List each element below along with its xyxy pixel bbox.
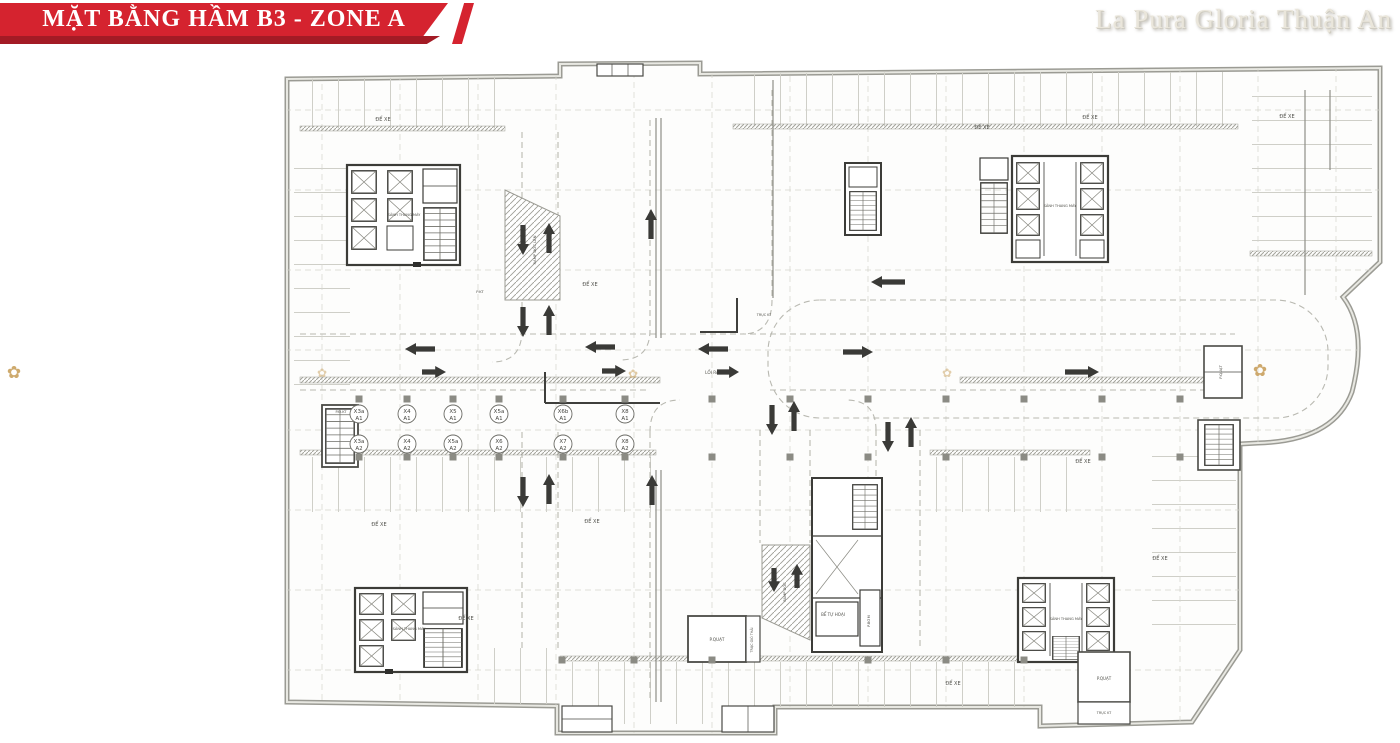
grid-bubble-top: X5a: [448, 439, 459, 445]
room-label: ĐỂ XE: [974, 123, 989, 131]
room-label: SẢNH THANG MÁY: [1050, 616, 1084, 621]
lotus-emblem-icon: ✿: [317, 366, 327, 380]
grid-bubble-bottom: A1: [449, 416, 456, 422]
floor-plan-drawing: ĐỂ XEĐỂ XEĐỂ XEĐỂ XEĐỂ XEĐỂ XEĐỂ XEĐỂ XE…: [0, 0, 1400, 743]
room-label: P.QUẠT: [1097, 676, 1112, 681]
lotus-emblem-icon: ✿: [7, 363, 21, 383]
room-label: ĐỂ XE: [1082, 113, 1097, 121]
grid-bubble-bottom: A2: [355, 446, 362, 452]
room-label: ĐỂ XE: [371, 520, 386, 528]
room-label: RAMP DỐC LÊN: [532, 235, 537, 264]
room-label: ĐỂ XE: [375, 115, 390, 123]
grid-bubble-top: X5: [449, 409, 457, 415]
grid-bubble-bottom: A2: [495, 446, 502, 452]
grid-bubble-top: X4: [403, 409, 411, 415]
grid-bubble-top: X3a: [354, 439, 365, 445]
room-label: ĐỂ XE: [945, 679, 960, 687]
room-label: SẢNH THANG MÁY: [388, 212, 422, 217]
room-label: TRỤC KT: [756, 313, 772, 317]
room-label: P.QUẠT: [710, 637, 725, 642]
grid-bubble-top: X6b: [558, 409, 569, 415]
grid-bubble-top: X5a: [494, 409, 505, 415]
room-label: SẢNH THANG MÁY: [1044, 203, 1078, 208]
room-bottom-protrusion-left: [562, 706, 612, 732]
grid-bubble-top: X3a: [354, 409, 365, 415]
grid-bubble-top: X6: [495, 439, 503, 445]
grid-bubble-bottom: A1: [559, 416, 566, 422]
room-label: RAMP DỐC: [782, 582, 787, 602]
room-label: ĐỂ XE: [458, 614, 473, 622]
floor-plan: ĐỂ XEĐỂ XEĐỂ XEĐỂ XEĐỂ XEĐỂ XEĐỂ XEĐỂ XE…: [0, 0, 1400, 743]
lotus-emblem-icon: ✿: [942, 366, 952, 380]
room-label: TRỤC KT: [1096, 711, 1112, 715]
lotus-emblem-icon: ✿: [1253, 361, 1267, 381]
banner-underline: [0, 36, 440, 44]
room-label: ĐỂ XE: [582, 280, 597, 288]
page-title: MẶT BẰNG HẦM B3 - ZONE A: [42, 6, 406, 33]
room-label: P.QUẠT: [1218, 365, 1223, 379]
room-top-step: [597, 64, 643, 76]
lotus-emblem-icon: ✿: [628, 367, 638, 381]
room-label: BỂ TỰ HOẠI: [821, 612, 845, 617]
brand-title: La Pura Gloria Thuận An: [1095, 4, 1392, 35]
grid-bubble-bottom: A1: [355, 416, 362, 422]
grid-bubble-bottom: A2: [559, 446, 566, 452]
grid-bubble-top: X4: [403, 439, 411, 445]
fan-room-right: [1204, 346, 1242, 398]
stair-right: [1198, 420, 1240, 470]
room-label: P.KT: [476, 289, 484, 294]
grid-bubble-bottom: A1: [495, 416, 502, 422]
core-center-right: [812, 478, 882, 652]
room-label: P.Đ.KT: [336, 410, 348, 414]
grid-bubble-top: X7: [559, 439, 567, 445]
grid-bubble-bottom: A1: [621, 416, 628, 422]
room-label: P.BƠM: [867, 615, 871, 627]
core-center-stair: [845, 163, 881, 235]
page: ĐỂ XEĐỂ XEĐỂ XEĐỂ XEĐỂ XEĐỂ XEĐỂ XEĐỂ XE…: [0, 0, 1400, 743]
grid-bubble-bottom: A2: [403, 446, 410, 452]
grid-bubble-bottom: A2: [621, 446, 628, 452]
room-label: ĐỂ XE: [584, 517, 599, 525]
grid-bubble-top: X8: [621, 409, 629, 415]
grid-bubble-bottom: A1: [403, 416, 410, 422]
core-bottom-left: [355, 588, 467, 674]
room-label: ĐỂ XE: [1075, 457, 1090, 465]
room-label: ĐỂ XE: [1152, 554, 1167, 562]
title-banner: MẶT BẰNG HẦM B3 - ZONE A: [0, 3, 448, 36]
room-bottom-protrusion-right: [722, 706, 774, 732]
room-label: TRỤC GIÓ THẢI: [749, 627, 754, 653]
room-label: ĐỂ XE: [1279, 112, 1294, 120]
room-label: SẢNH THANG MÁY: [393, 626, 427, 631]
grid-bubble-bottom: A2: [449, 446, 456, 452]
grid-bubble-top: X8: [621, 439, 629, 445]
room-label: LỐI RA: [705, 370, 719, 375]
